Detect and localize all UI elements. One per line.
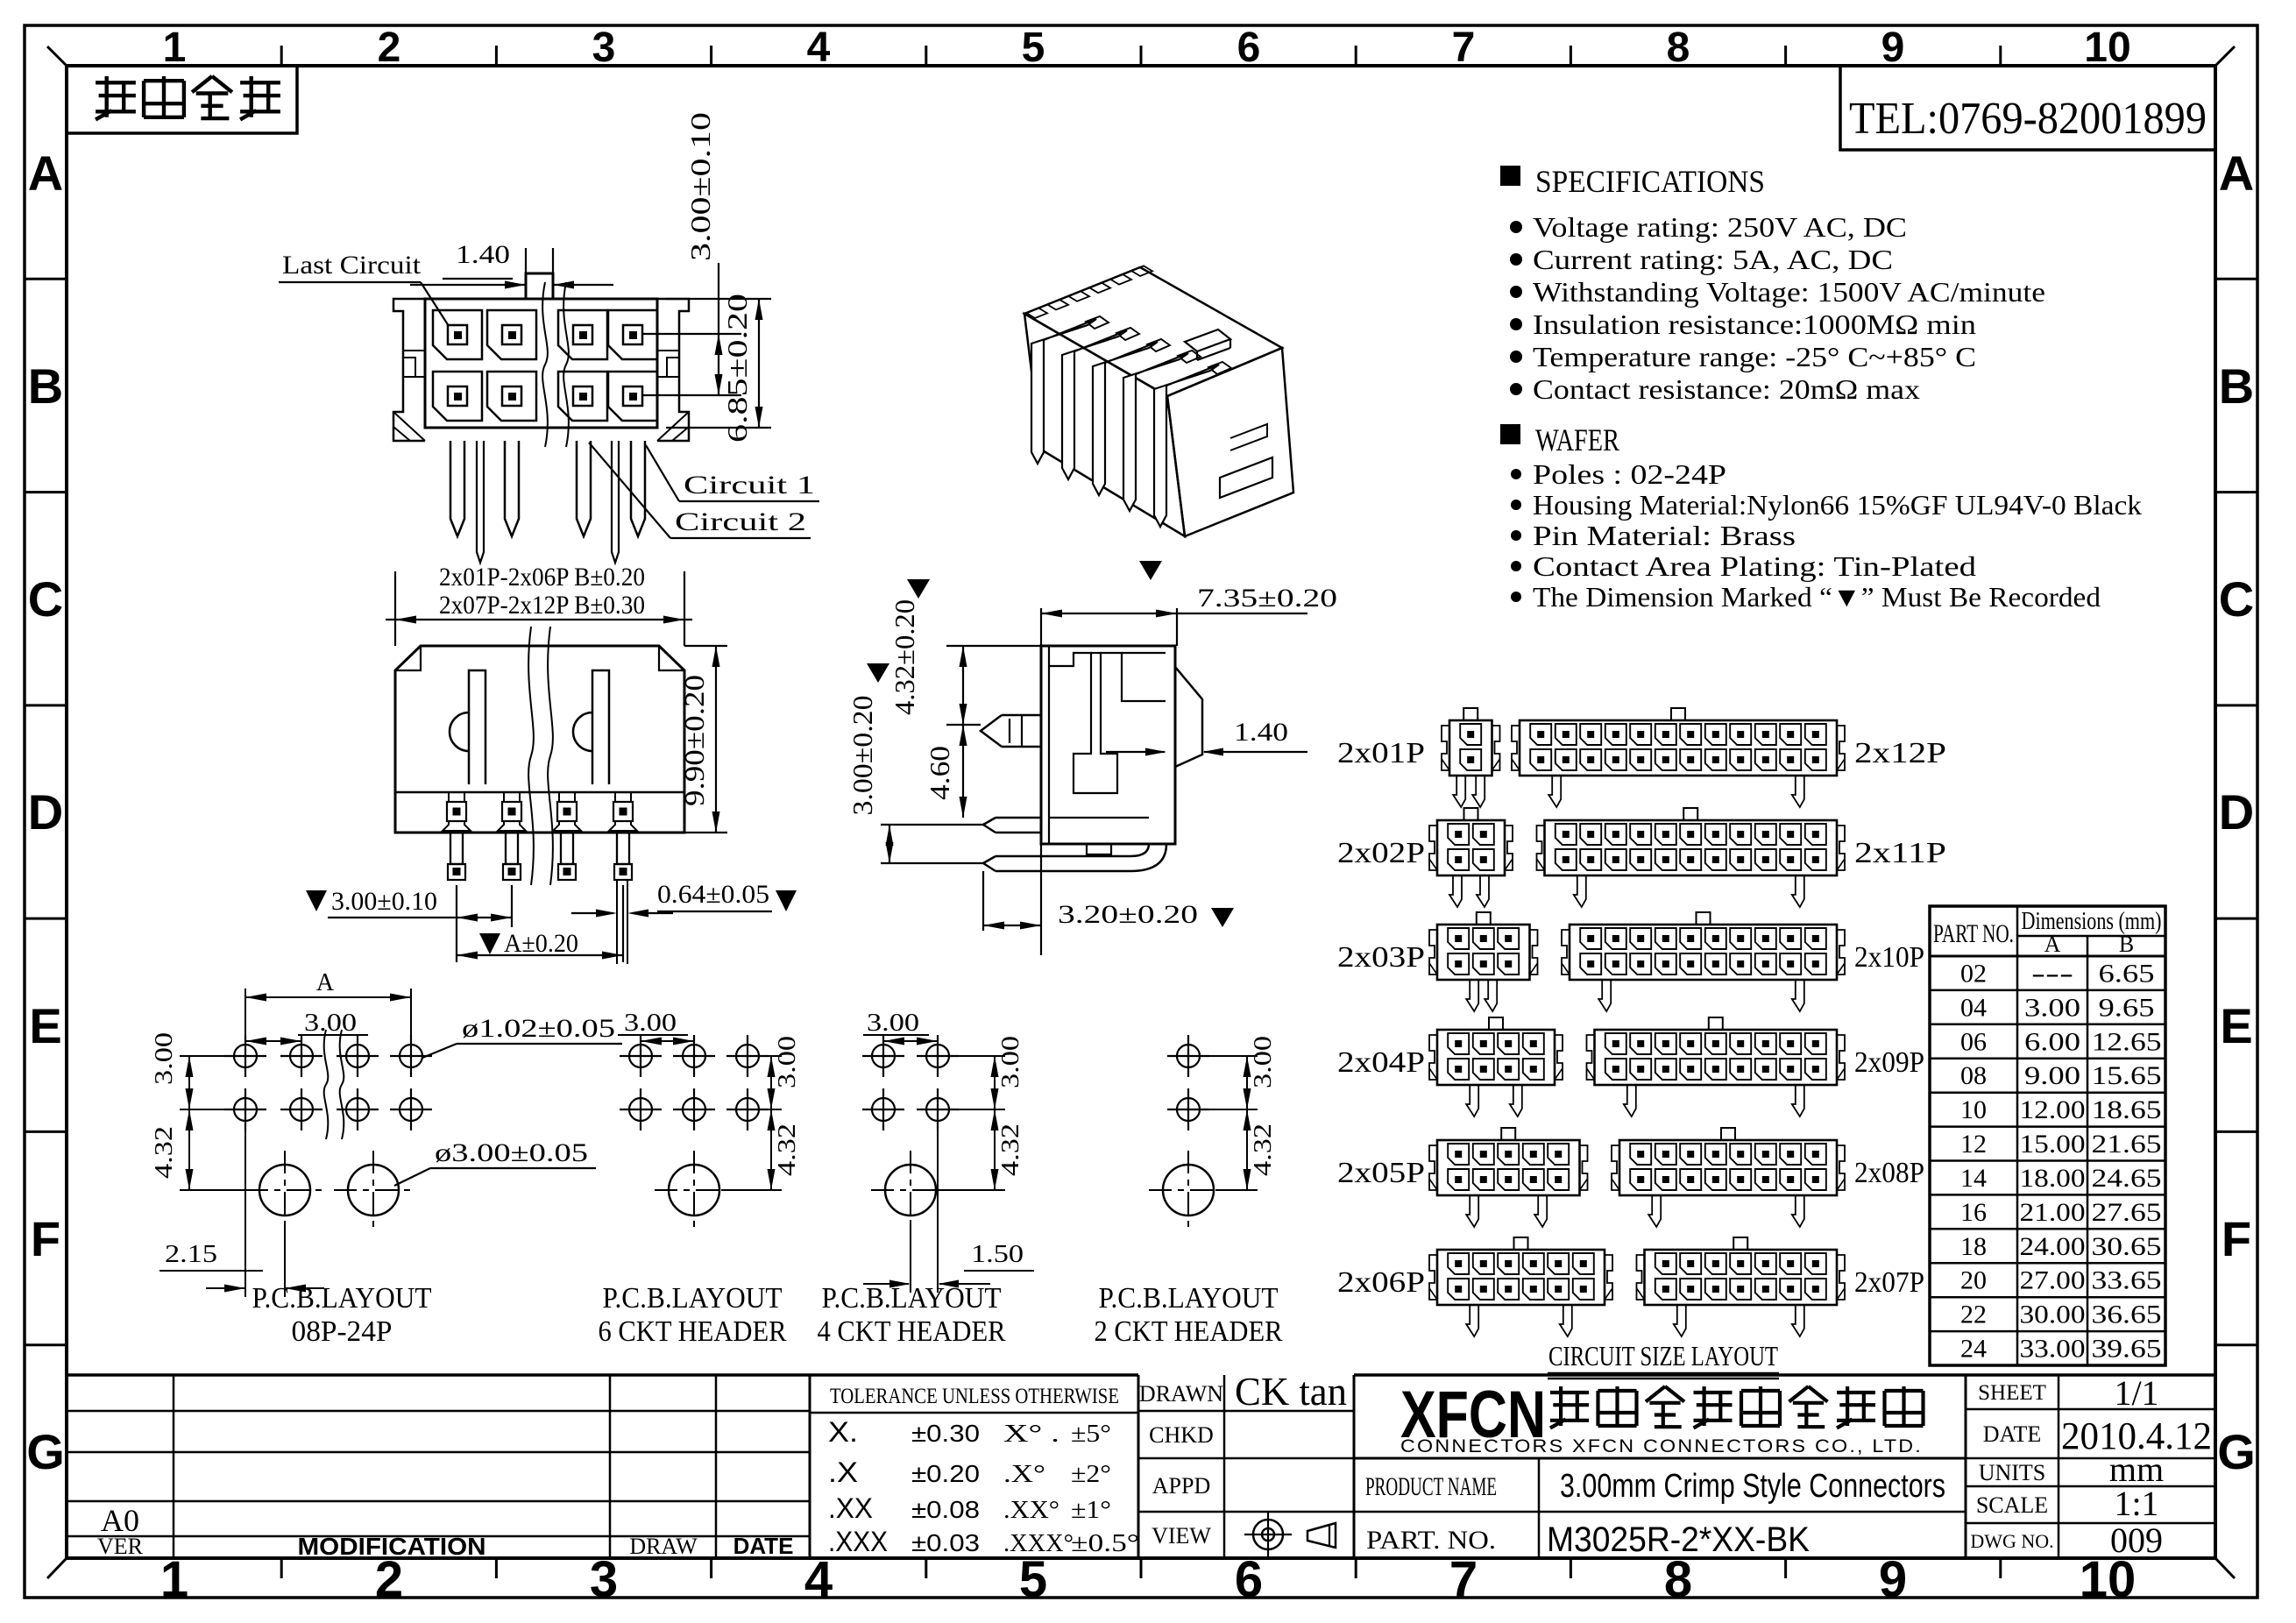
- svg-text:1.50: 1.50: [971, 1241, 1024, 1268]
- svg-text:7: 7: [1452, 25, 1476, 71]
- svg-text:3: 3: [590, 1551, 618, 1608]
- svg-text:2x08P: 2x08P: [1854, 1157, 1924, 1189]
- svg-text:WAFER: WAFER: [1535, 422, 1619, 457]
- svg-text:6.65: 6.65: [2099, 960, 2155, 989]
- svg-text:30.65: 30.65: [2092, 1232, 2162, 1261]
- svg-text:8: 8: [1664, 1551, 1692, 1608]
- svg-text:A: A: [2044, 932, 2061, 957]
- svg-text:04: 04: [1960, 993, 1987, 1022]
- svg-text:Withstanding Voltage: 1500V AC: Withstanding Voltage: 1500V AC/minute: [1533, 276, 2045, 308]
- svg-text:7: 7: [1449, 1551, 1478, 1608]
- svg-text:2x09P: 2x09P: [1854, 1046, 1924, 1079]
- svg-text:9.00: 9.00: [2024, 1061, 2080, 1090]
- svg-text:X° .: X° .: [1003, 1421, 1059, 1448]
- svg-text:D: D: [2219, 784, 2254, 840]
- svg-text:.XX: .XX: [828, 1492, 873, 1524]
- svg-text:4.32: 4.32: [1250, 1123, 1277, 1176]
- svg-text:UNITS: UNITS: [1979, 1460, 2046, 1485]
- svg-text:.X°: .X°: [1003, 1461, 1045, 1488]
- svg-text:009: 009: [2110, 1520, 2163, 1560]
- svg-text:M3025R-2*XX-BK: M3025R-2*XX-BK: [1547, 1520, 1810, 1559]
- svg-text:±0.30: ±0.30: [911, 1420, 980, 1447]
- svg-text:Dimensions (mm): Dimensions (mm): [2022, 908, 2162, 935]
- svg-text:4.32: 4.32: [151, 1126, 178, 1179]
- svg-text:TEL:0769-82001899: TEL:0769-82001899: [1849, 94, 2207, 144]
- svg-text:27.65: 27.65: [2092, 1198, 2162, 1227]
- svg-text:.X: .X: [828, 1456, 858, 1488]
- svg-text:B: B: [28, 358, 63, 414]
- svg-text:3.00±0.20: 3.00±0.20: [847, 696, 878, 816]
- svg-text:DATE: DATE: [1983, 1421, 2041, 1447]
- svg-text:24.65: 24.65: [2092, 1164, 2162, 1193]
- svg-text:F: F: [2222, 1211, 2251, 1266]
- svg-text:Poles : 02-24P: Poles : 02-24P: [1533, 458, 1726, 490]
- svg-text:5: 5: [1022, 25, 1045, 71]
- svg-text:ø1.02±0.05: ø1.02±0.05: [462, 1014, 615, 1043]
- svg-text:3.00: 3.00: [151, 1032, 178, 1085]
- svg-text:4.60: 4.60: [924, 746, 955, 800]
- svg-text:2: 2: [378, 25, 401, 71]
- svg-text:10: 10: [1960, 1095, 1987, 1124]
- svg-text:18.00: 18.00: [2020, 1164, 2086, 1193]
- svg-text:D: D: [28, 784, 63, 840]
- svg-text:Contact resistance: 20mΩ max: Contact resistance: 20mΩ max: [1533, 373, 1920, 405]
- svg-text:6 CKT HEADER: 6 CKT HEADER: [599, 1315, 787, 1348]
- svg-text:10: 10: [2084, 25, 2130, 71]
- svg-text:6: 6: [1237, 25, 1261, 71]
- svg-text:Housing Material:Nylon66 15%GF: Housing Material:Nylon66 15%GF UL94V-0 B…: [1533, 489, 2142, 521]
- svg-text:7.35±0.20: 7.35±0.20: [1197, 584, 1337, 613]
- svg-text:±0.03: ±0.03: [911, 1529, 980, 1556]
- svg-text:PRODUCT NAME: PRODUCT NAME: [1365, 1472, 1497, 1501]
- svg-text:B: B: [2119, 932, 2134, 957]
- svg-text:P.C.B.LAYOUT: P.C.B.LAYOUT: [603, 1282, 783, 1315]
- svg-text:SHEET: SHEET: [1978, 1381, 2046, 1405]
- svg-text:Circuit 1: Circuit 1: [684, 471, 815, 500]
- svg-text:36.65: 36.65: [2092, 1301, 2162, 1329]
- svg-text:P.C.B.LAYOUT: P.C.B.LAYOUT: [1099, 1282, 1279, 1315]
- svg-text:P.C.B.LAYOUT: P.C.B.LAYOUT: [822, 1282, 1002, 1315]
- svg-text:E: E: [2220, 998, 2252, 1053]
- svg-text:CK tan: CK tan: [1235, 1369, 1347, 1414]
- svg-text:2x04P: 2x04P: [1337, 1046, 1425, 1079]
- svg-text:1: 1: [163, 25, 187, 71]
- svg-text:2x01P: 2x01P: [1337, 737, 1425, 769]
- svg-text:02: 02: [1960, 960, 1987, 989]
- svg-text:SCALE: SCALE: [1976, 1492, 2048, 1518]
- svg-text:2x03P: 2x03P: [1337, 941, 1425, 974]
- svg-text:1:1: 1:1: [2114, 1484, 2158, 1523]
- svg-text:15.65: 15.65: [2092, 1061, 2162, 1090]
- svg-text:Pin Material: Brass: Pin Material: Brass: [1533, 520, 1796, 551]
- svg-text:3: 3: [592, 25, 616, 71]
- svg-text:P.C.B.LAYOUT: P.C.B.LAYOUT: [252, 1282, 432, 1315]
- svg-text:4.32±0.20: 4.32±0.20: [889, 599, 920, 715]
- svg-text:4: 4: [804, 1551, 833, 1608]
- svg-text:3.00: 3.00: [2024, 993, 2080, 1022]
- svg-text:3.00: 3.00: [867, 1010, 919, 1037]
- svg-text:8: 8: [1667, 25, 1690, 71]
- svg-text:TOLERANCE UNLESS OTHERWISE: TOLERANCE UNLESS OTHERWISE: [830, 1385, 1119, 1408]
- svg-text:6.00: 6.00: [2024, 1027, 2080, 1056]
- svg-text:PART. NO.: PART. NO.: [1366, 1526, 1496, 1555]
- svg-text:2x01P-2x06P B±0.20: 2x01P-2x06P B±0.20: [439, 563, 645, 592]
- svg-text:2.15: 2.15: [165, 1241, 217, 1268]
- svg-text:The Dimension Marked “▼” Must: The Dimension Marked “▼” Must Be Recorde…: [1533, 581, 2101, 613]
- svg-text:2x07P-2x12P B±0.30: 2x07P-2x12P B±0.30: [439, 591, 645, 620]
- svg-text:1/1: 1/1: [2114, 1373, 2158, 1413]
- svg-text:2 CKT HEADER: 2 CKT HEADER: [1095, 1315, 1283, 1348]
- svg-text:Current rating: 5A, AC, DC: Current rating: 5A, AC, DC: [1533, 244, 1893, 275]
- svg-text:3.00mm Crimp Style Connectors: 3.00mm Crimp Style Connectors: [1560, 1468, 1945, 1505]
- svg-text:3.00: 3.00: [997, 1036, 1024, 1088]
- svg-text:1: 1: [160, 1551, 188, 1608]
- svg-text:6: 6: [1235, 1551, 1263, 1608]
- svg-text:15.00: 15.00: [2020, 1130, 2086, 1159]
- svg-text:F: F: [31, 1211, 60, 1266]
- svg-text:Last Circuit: Last Circuit: [282, 251, 422, 280]
- svg-text:G: G: [26, 1424, 65, 1479]
- svg-text:DRAWN: DRAWN: [1139, 1381, 1223, 1407]
- svg-text:21.00: 21.00: [2020, 1198, 2086, 1227]
- svg-text:0.64±0.05: 0.64±0.05: [657, 880, 769, 909]
- svg-text:9.65: 9.65: [2099, 993, 2155, 1022]
- svg-text:18: 18: [1960, 1232, 1987, 1261]
- svg-text:4.32: 4.32: [997, 1123, 1024, 1176]
- svg-text:16: 16: [1960, 1198, 1987, 1227]
- svg-text:APPD: APPD: [1152, 1473, 1210, 1499]
- svg-text:ø3.00±0.05: ø3.00±0.05: [435, 1138, 588, 1167]
- svg-text:A: A: [28, 145, 63, 201]
- svg-text:9: 9: [1881, 25, 1905, 71]
- svg-text:08P-24P: 08P-24P: [292, 1315, 393, 1348]
- svg-text:3.00: 3.00: [304, 1010, 357, 1037]
- svg-text:3.00±0.10: 3.00±0.10: [684, 112, 716, 261]
- svg-text:2x11P: 2x11P: [1854, 837, 1946, 869]
- svg-text:4.32: 4.32: [774, 1123, 801, 1176]
- svg-text:±0.08: ±0.08: [911, 1496, 980, 1523]
- svg-text:±5°: ±5°: [1071, 1421, 1111, 1448]
- svg-text:6.85±0.20: 6.85±0.20: [721, 294, 753, 443]
- svg-text:A: A: [2219, 145, 2254, 201]
- svg-text:4 CKT HEADER: 4 CKT HEADER: [818, 1315, 1006, 1348]
- svg-text:DATE: DATE: [733, 1533, 794, 1559]
- svg-text:Contact Area Plating: Tin-Plat: Contact Area Plating: Tin-Plated: [1533, 550, 1976, 582]
- svg-text:VER: VER: [97, 1534, 144, 1559]
- svg-text:2x06P: 2x06P: [1337, 1266, 1425, 1299]
- svg-text:9.90±0.20: 9.90±0.20: [678, 675, 710, 806]
- svg-text:14: 14: [1960, 1164, 1987, 1193]
- svg-text:PART NO.: PART NO.: [1933, 919, 2014, 948]
- svg-text:±0.20: ±0.20: [911, 1460, 980, 1487]
- svg-text:9: 9: [1879, 1551, 1907, 1608]
- svg-text:08: 08: [1960, 1061, 1987, 1090]
- svg-text:---: ---: [2031, 960, 2073, 989]
- svg-text:2x10P: 2x10P: [1854, 941, 1924, 974]
- svg-text:12.00: 12.00: [2020, 1095, 2086, 1124]
- svg-text:Voltage rating: 250V AC, DC: Voltage rating: 250V AC, DC: [1533, 211, 1907, 243]
- svg-text:DWG NO.: DWG NO.: [1970, 1530, 2053, 1552]
- svg-text:1.40: 1.40: [1234, 718, 1288, 747]
- svg-text:Temperature range: -25° C~+85°: Temperature range: -25° C~+85° C: [1533, 341, 1976, 372]
- svg-text:A±0.20: A±0.20: [504, 929, 578, 958]
- svg-text:C: C: [28, 571, 63, 627]
- svg-text:.XXX°: .XXX°: [1003, 1530, 1074, 1557]
- svg-text:MODIFICATION: MODIFICATION: [298, 1533, 486, 1560]
- svg-text:±0.5°: ±0.5°: [1071, 1530, 1139, 1557]
- svg-text:06: 06: [1960, 1027, 1987, 1056]
- svg-text:SPECIFICATIONS: SPECIFICATIONS: [1535, 164, 1765, 199]
- svg-text:24.00: 24.00: [2020, 1232, 2086, 1261]
- svg-text:.XX°: .XX°: [1003, 1497, 1059, 1524]
- svg-text:21.65: 21.65: [2092, 1130, 2162, 1159]
- svg-text:18.65: 18.65: [2092, 1095, 2162, 1124]
- svg-text:12.65: 12.65: [2092, 1027, 2162, 1056]
- svg-text:12: 12: [1960, 1130, 1987, 1159]
- svg-text:B: B: [2219, 358, 2254, 414]
- svg-text:G: G: [2217, 1424, 2256, 1479]
- svg-text:3.00: 3.00: [1250, 1036, 1277, 1088]
- svg-text:22: 22: [1960, 1301, 1987, 1329]
- svg-text:3.00: 3.00: [624, 1010, 677, 1037]
- svg-text:CONNECTORS XFCN CONNECTORS CO.: CONNECTORS XFCN CONNECTORS CO., LTD.: [1400, 1436, 1923, 1456]
- svg-text:VIEW: VIEW: [1152, 1523, 1211, 1549]
- svg-text:DRAW: DRAW: [629, 1534, 698, 1559]
- svg-text:±2°: ±2°: [1071, 1461, 1111, 1488]
- svg-text:2x12P: 2x12P: [1854, 737, 1946, 769]
- svg-text:Circuit 2: Circuit 2: [675, 507, 806, 536]
- svg-text:20: 20: [1960, 1266, 1987, 1295]
- svg-text:1.40: 1.40: [456, 240, 510, 269]
- svg-text:5: 5: [1019, 1551, 1047, 1608]
- svg-text:±1°: ±1°: [1071, 1497, 1111, 1524]
- svg-text:CHKD: CHKD: [1149, 1422, 1214, 1448]
- svg-text:3.00±0.10: 3.00±0.10: [331, 887, 437, 916]
- svg-text:C: C: [2219, 571, 2254, 627]
- svg-text:2x07P: 2x07P: [1854, 1266, 1924, 1299]
- svg-text:27.00: 27.00: [2020, 1266, 2086, 1295]
- svg-text:4: 4: [807, 25, 831, 71]
- svg-text:2x05P: 2x05P: [1337, 1157, 1425, 1189]
- svg-text:A0: A0: [101, 1503, 139, 1538]
- svg-text:39.65: 39.65: [2092, 1335, 2162, 1364]
- svg-text:Insulation resistance:1000MΩ m: Insulation resistance:1000MΩ min: [1533, 308, 1976, 340]
- svg-text:3.20±0.20: 3.20±0.20: [1058, 900, 1198, 929]
- svg-text:.XXX: .XXX: [828, 1526, 888, 1557]
- svg-text:E: E: [29, 998, 61, 1053]
- svg-text:30.00: 30.00: [2020, 1301, 2086, 1329]
- svg-text:33.65: 33.65: [2092, 1266, 2162, 1295]
- svg-text:2x02P: 2x02P: [1337, 837, 1425, 869]
- svg-text:24: 24: [1960, 1335, 1987, 1364]
- svg-text:CIRCUIT SIZE LAYOUT: CIRCUIT SIZE LAYOUT: [1548, 1340, 1778, 1371]
- svg-text:A: A: [316, 969, 335, 996]
- svg-text:33.00: 33.00: [2020, 1335, 2086, 1364]
- svg-text:X.: X.: [828, 1416, 858, 1448]
- svg-text:3.00: 3.00: [774, 1036, 801, 1088]
